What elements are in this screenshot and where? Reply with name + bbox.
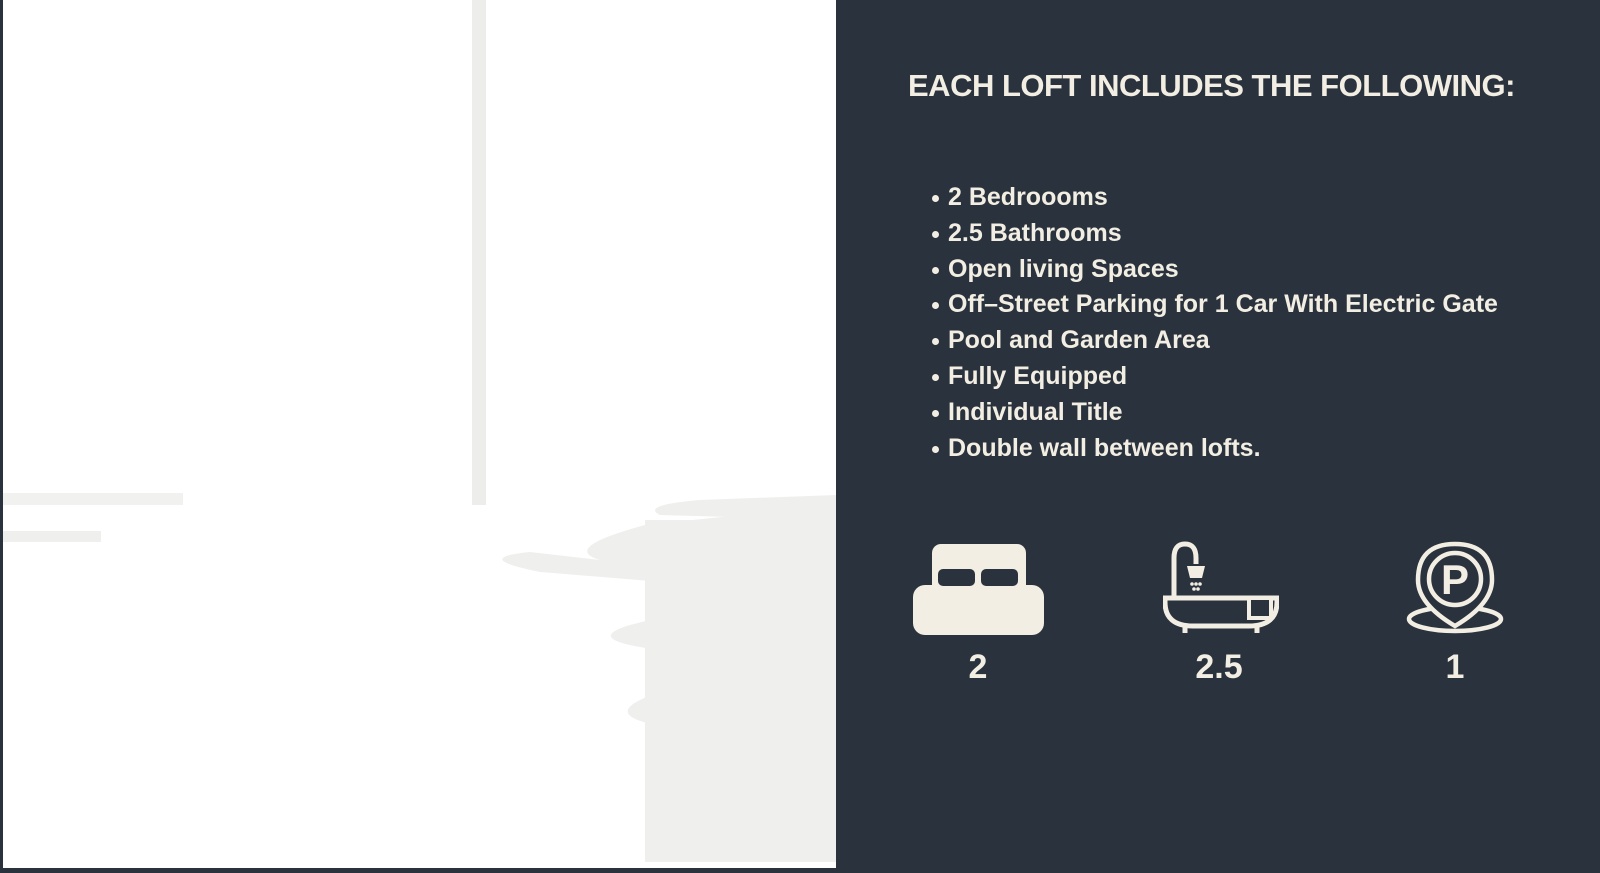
svg-text:P: P bbox=[1441, 556, 1469, 603]
